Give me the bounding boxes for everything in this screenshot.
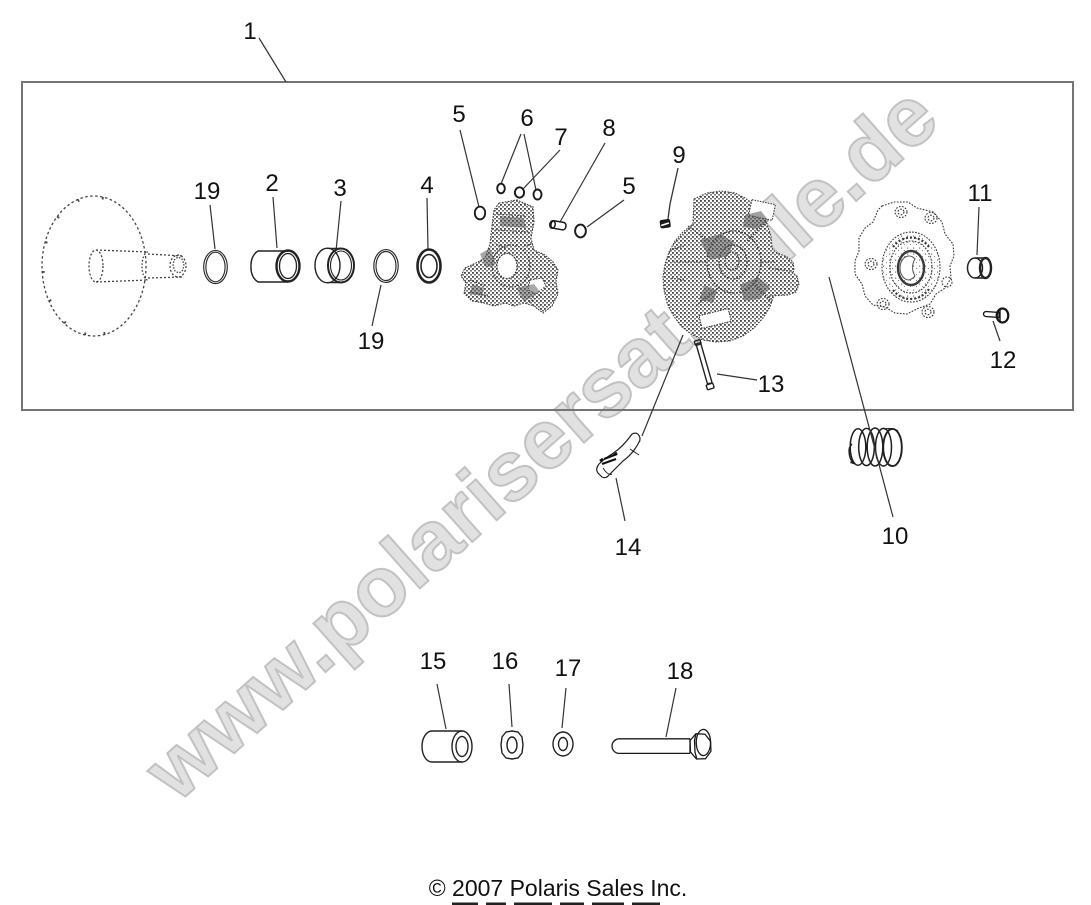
- svg-text:18: 18: [667, 658, 694, 685]
- svg-text:19: 19: [358, 328, 385, 355]
- svg-text:4: 4: [420, 172, 433, 199]
- svg-text:10: 10: [882, 523, 909, 550]
- svg-text:13: 13: [758, 371, 785, 398]
- svg-text:© 2007 Polaris Sales Inc.: © 2007 Polaris Sales Inc.: [429, 875, 688, 901]
- svg-text:9: 9: [672, 142, 685, 169]
- svg-text:8: 8: [602, 115, 615, 142]
- svg-text:17: 17: [555, 655, 582, 682]
- svg-text:1: 1: [243, 18, 256, 45]
- svg-text:2: 2: [265, 170, 278, 197]
- svg-text:7: 7: [554, 124, 567, 151]
- svg-text:5: 5: [452, 101, 465, 128]
- svg-text:19: 19: [194, 178, 221, 205]
- svg-text:14: 14: [615, 534, 642, 561]
- svg-text:5: 5: [622, 173, 635, 200]
- svg-text:16: 16: [492, 648, 519, 675]
- svg-text:3: 3: [333, 175, 346, 202]
- svg-text:15: 15: [420, 648, 447, 675]
- svg-text:12: 12: [990, 347, 1017, 374]
- svg-text:6: 6: [520, 105, 533, 132]
- svg-text:11: 11: [968, 180, 993, 207]
- svg-text:www.polarisersatzteile.de: www.polarisersatzteile.de: [126, 67, 955, 818]
